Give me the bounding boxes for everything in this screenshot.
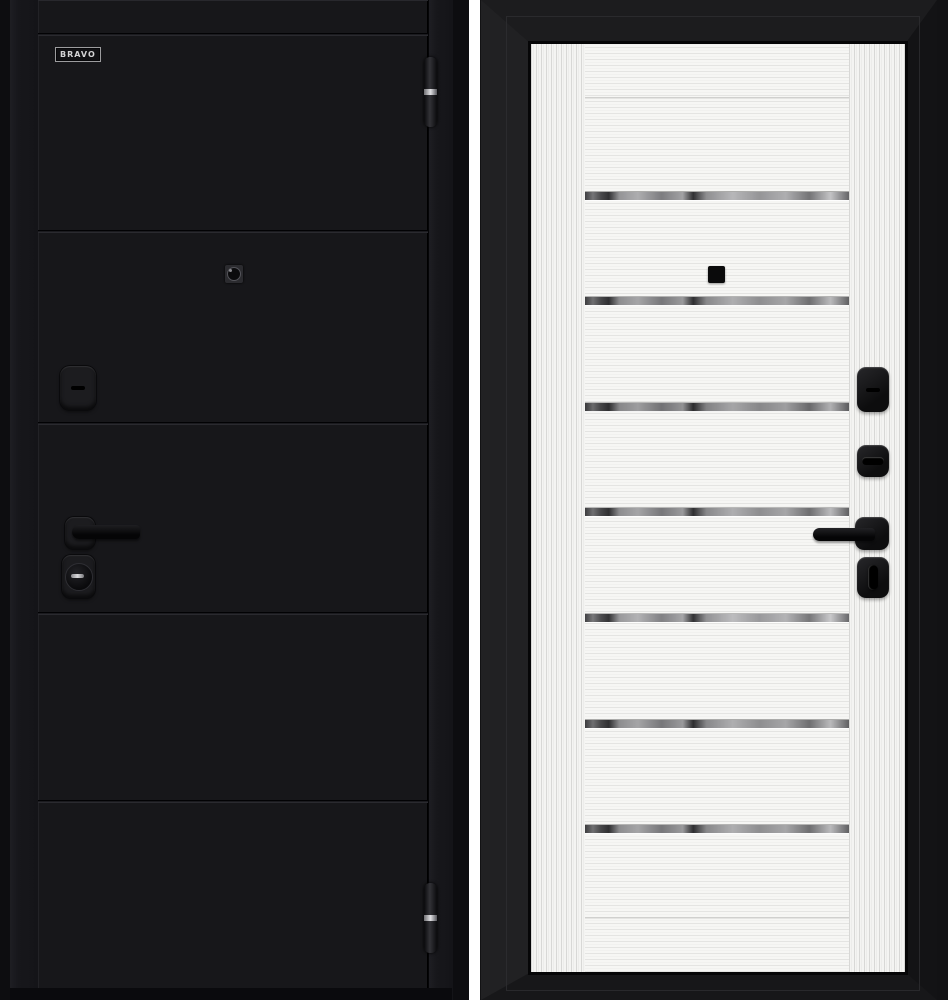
night-latch-knob <box>868 565 878 590</box>
thumbturn-escutcheon <box>857 445 889 477</box>
glass-strip <box>585 720 849 728</box>
panel-groove <box>585 917 849 919</box>
door-handle <box>813 528 875 541</box>
panel-groove <box>585 97 849 99</box>
leaf-stile-right <box>849 44 905 972</box>
bottom-hinge <box>424 883 437 953</box>
thumbturn-icon <box>862 457 884 465</box>
cylinder-lock-escutcheon <box>62 555 95 598</box>
hinge-band <box>424 915 437 921</box>
door-handle <box>72 525 140 539</box>
door-frame-right <box>428 0 453 1000</box>
glass-strip <box>585 403 849 411</box>
hinge-band <box>424 89 437 95</box>
peephole-inner <box>708 266 725 283</box>
glass-strip <box>585 508 849 516</box>
panel-groove <box>38 230 428 233</box>
keyhole-escutcheon <box>857 367 889 412</box>
panel-groove <box>38 33 428 36</box>
peephole <box>225 265 243 283</box>
cylinder-keyway <box>71 574 84 578</box>
glass-strip <box>585 192 849 200</box>
panel-groove <box>38 612 428 615</box>
leaf-center-panel <box>585 44 849 972</box>
door-threshold <box>10 988 452 1000</box>
keyhole-icon <box>71 386 85 390</box>
panel-groove <box>38 800 428 803</box>
door-exterior-photo[interactable]: BRAVO <box>0 0 469 1000</box>
leaf-stile-left <box>531 44 585 972</box>
night-latch-escutcheon <box>857 557 889 598</box>
door-leaf-exterior: BRAVO <box>38 0 428 988</box>
keyhole-icon <box>866 388 880 392</box>
glass-strip <box>585 614 849 622</box>
top-hinge <box>424 57 437 127</box>
door-leaf-interior <box>531 44 905 972</box>
brand-logo: BRAVO <box>55 47 101 62</box>
door-frame-left <box>10 0 39 1000</box>
glass-strip <box>585 825 849 833</box>
panel-groove <box>38 422 428 425</box>
glass-strip <box>585 297 849 305</box>
peephole-highlight <box>229 269 232 272</box>
upper-lock-escutcheon <box>60 366 96 410</box>
door-interior-photo[interactable] <box>480 0 948 1000</box>
